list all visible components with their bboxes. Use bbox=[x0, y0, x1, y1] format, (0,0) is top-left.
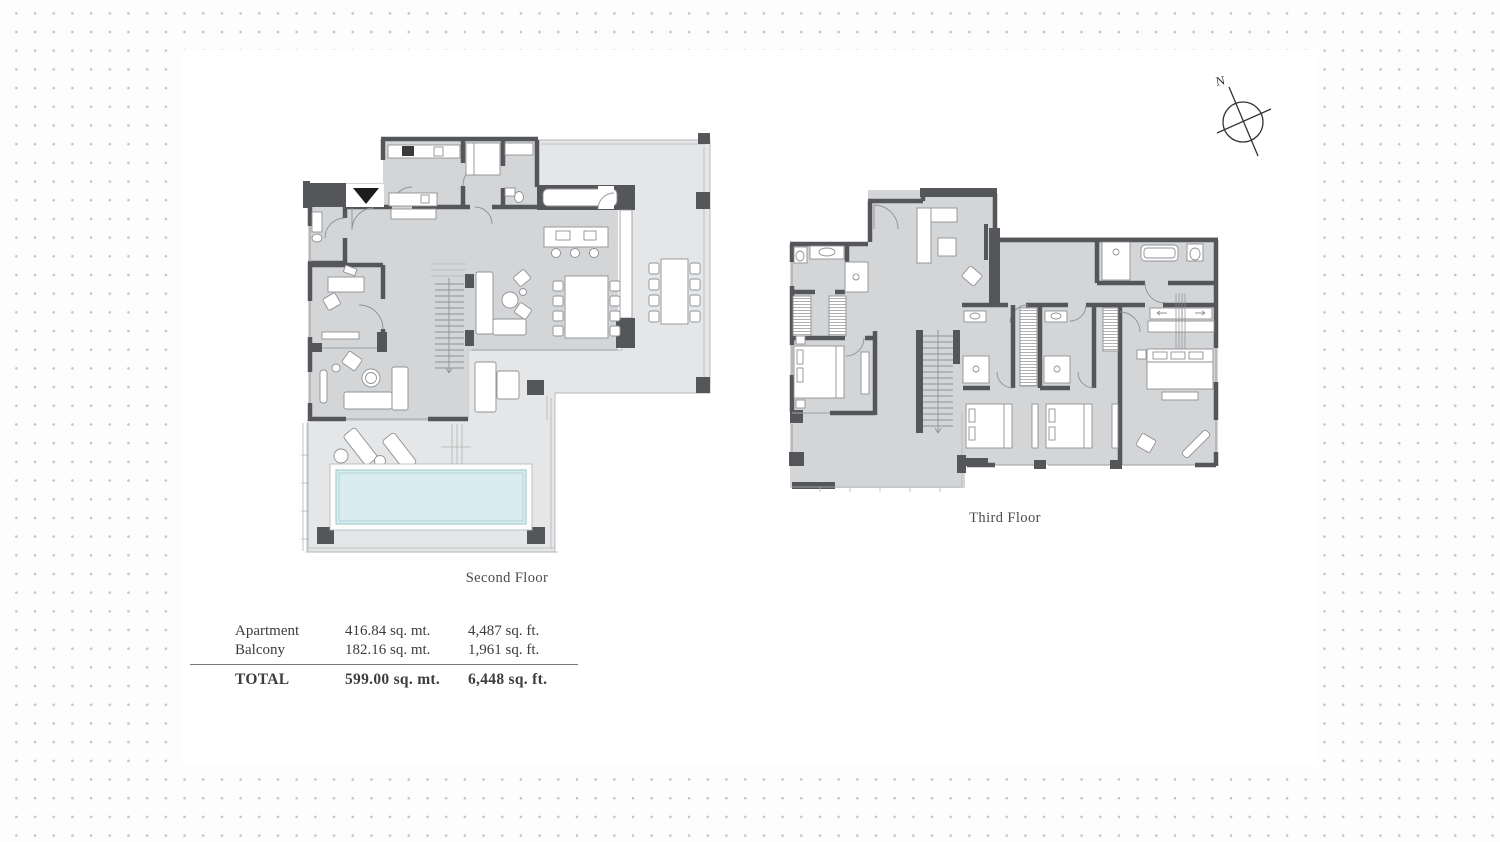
shower bbox=[1102, 242, 1130, 280]
page: { "compass": { "label": "N" }, "plans": … bbox=[0, 0, 1500, 842]
bathtub bbox=[1141, 245, 1178, 261]
total-metric: 599.00 sq. mt. bbox=[345, 670, 468, 689]
desk bbox=[328, 277, 364, 292]
bath-tub-small bbox=[505, 143, 533, 155]
second-floor-plan bbox=[301, 133, 710, 552]
shower bbox=[845, 262, 868, 292]
total-imperial: 6,448 sq. ft. bbox=[468, 670, 578, 689]
floor-plans-canvas bbox=[0, 0, 1500, 842]
kitchen-island bbox=[544, 227, 608, 247]
sofa bbox=[917, 208, 931, 263]
dining-table bbox=[565, 276, 608, 338]
entrance bbox=[346, 184, 384, 207]
sink bbox=[312, 212, 322, 232]
table-divider bbox=[190, 664, 578, 665]
shower bbox=[963, 356, 989, 383]
outdoor-dining-table bbox=[661, 259, 688, 324]
area-table: Apartment 416.84 sq. mt. 4,487 sq. ft. B… bbox=[190, 622, 578, 689]
outdoor-sofa bbox=[475, 362, 496, 412]
dresser bbox=[861, 352, 869, 394]
pool bbox=[336, 470, 526, 524]
table-row-apartment: Apartment 416.84 sq. mt. 4,487 sq. ft. bbox=[190, 622, 578, 641]
row-metric: 182.16 sq. mt. bbox=[345, 641, 468, 660]
third-floor-label: Third Floor bbox=[930, 510, 1080, 527]
row-imperial: 4,487 sq. ft. bbox=[468, 622, 578, 641]
table-row-total: TOTAL 599.00 sq. mt. 6,448 sq. ft. bbox=[190, 670, 578, 689]
third-floor-plan bbox=[789, 188, 1218, 492]
maid-bed bbox=[466, 143, 500, 175]
second-floor-label: Second Floor bbox=[427, 570, 587, 587]
total-label: TOTAL bbox=[190, 670, 345, 689]
sofa bbox=[476, 272, 493, 334]
row-metric: 416.84 sq. mt. bbox=[345, 622, 468, 641]
row-imperial: 1,961 sq. ft. bbox=[468, 641, 578, 660]
shower bbox=[1044, 356, 1070, 383]
toilet bbox=[515, 192, 524, 203]
compass bbox=[1217, 87, 1271, 156]
row-label: Balcony bbox=[190, 641, 345, 660]
toilet bbox=[312, 234, 322, 242]
table-row-balcony: Balcony 182.16 sq. mt. 1,961 sq. ft. bbox=[190, 641, 578, 660]
row-label: Apartment bbox=[190, 622, 345, 641]
toilet bbox=[1187, 244, 1203, 261]
